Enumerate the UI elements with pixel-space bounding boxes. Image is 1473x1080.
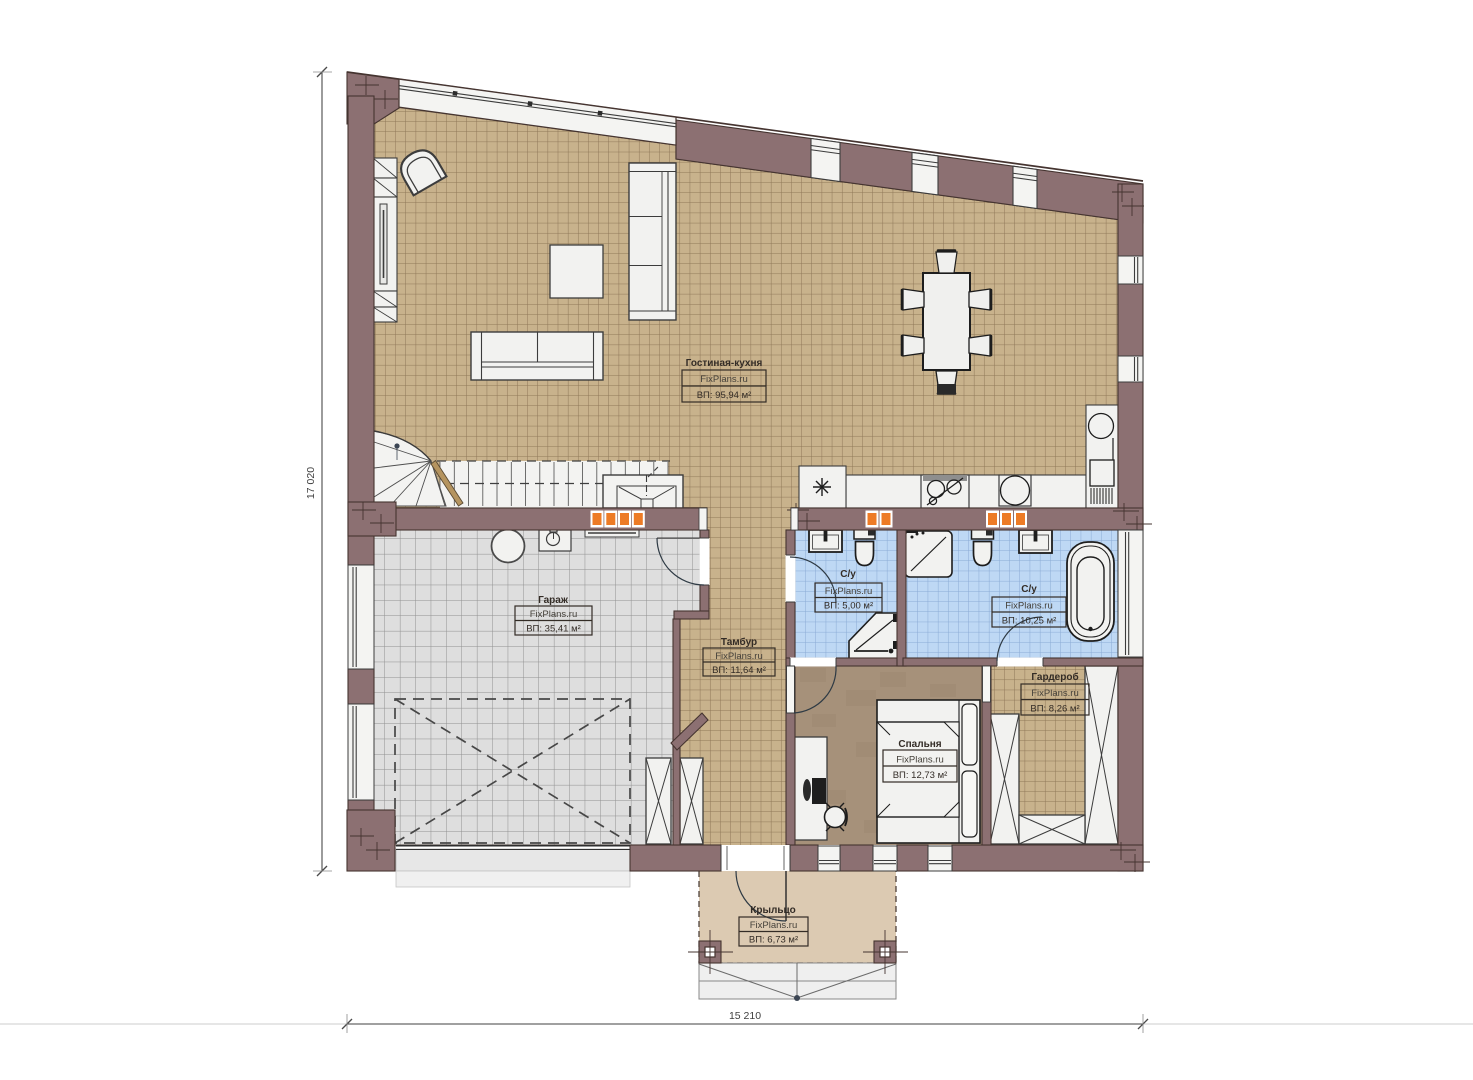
svg-text:FixPlans.ru: FixPlans.ru bbox=[715, 651, 763, 662]
svg-text:FixPlans.ru: FixPlans.ru bbox=[530, 609, 578, 620]
svg-text:FixPlans.ru: FixPlans.ru bbox=[896, 755, 944, 766]
svg-text:ВП: 8,26 м²: ВП: 8,26 м² bbox=[1030, 704, 1079, 715]
svg-text:Тамбур: Тамбур bbox=[721, 636, 757, 648]
svg-text:ВП: 12,73 м²: ВП: 12,73 м² bbox=[893, 770, 948, 781]
svg-text:Гараж: Гараж bbox=[538, 595, 569, 606]
svg-text:ВП: 5,00 м²: ВП: 5,00 м² bbox=[824, 601, 873, 612]
svg-text:ВП: 11,64 м²: ВП: 11,64 м² bbox=[712, 665, 766, 676]
svg-text:ВП: 35,41 м²: ВП: 35,41 м² bbox=[526, 624, 581, 635]
svg-text:ВП: 95,94 м²: ВП: 95,94 м² bbox=[697, 390, 752, 401]
svg-text:ВП: 6,73 м²: ВП: 6,73 м² bbox=[749, 935, 798, 946]
svg-text:FixPlans.ru: FixPlans.ru bbox=[750, 920, 798, 931]
svg-text:Гардероб: Гардероб bbox=[1031, 671, 1078, 683]
svg-text:Спальня: Спальня bbox=[898, 739, 941, 750]
svg-text:FixPlans.ru: FixPlans.ru bbox=[825, 586, 873, 597]
svg-text:17 020: 17 020 bbox=[305, 467, 317, 499]
svg-text:С/у: С/у bbox=[1021, 584, 1037, 595]
svg-text:Гостиная-кухня: Гостиная-кухня bbox=[686, 358, 763, 369]
svg-text:FixPlans.ru: FixPlans.ru bbox=[1005, 601, 1053, 612]
svg-text:Крыльцо: Крыльцо bbox=[750, 905, 796, 916]
svg-text:15 210: 15 210 bbox=[729, 1010, 761, 1022]
svg-text:FixPlans.ru: FixPlans.ru bbox=[700, 374, 748, 385]
svg-text:С/у: С/у bbox=[840, 569, 856, 580]
svg-text:FixPlans.ru: FixPlans.ru bbox=[1031, 688, 1079, 699]
svg-text:ВП: 10,25 м²: ВП: 10,25 м² bbox=[1002, 616, 1057, 627]
